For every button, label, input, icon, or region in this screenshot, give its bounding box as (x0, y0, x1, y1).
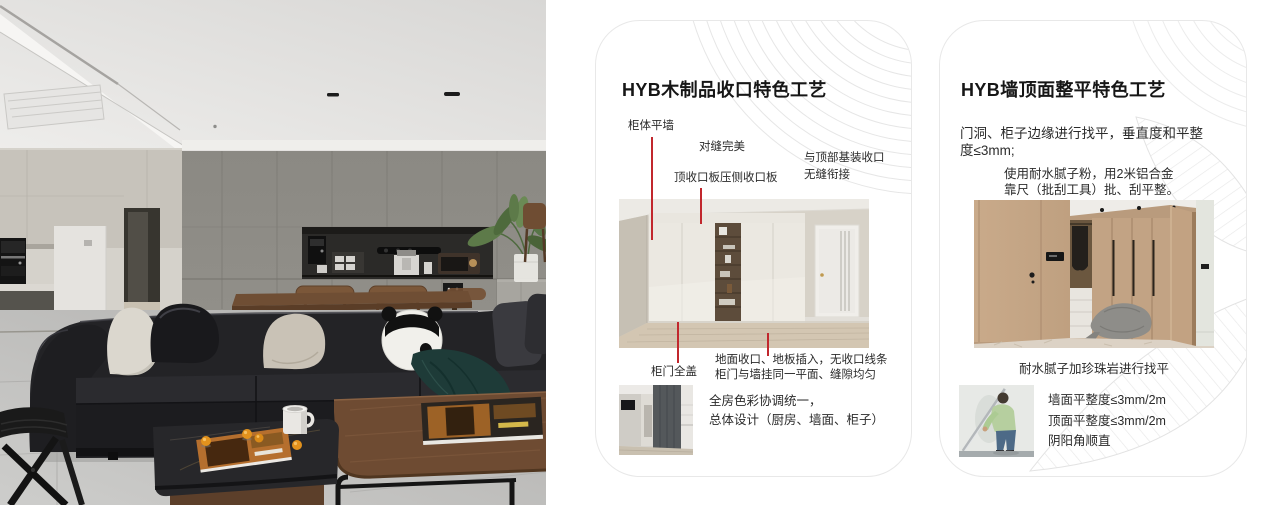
card2-title: HYB墙顶面整平特色工艺 (961, 76, 1166, 102)
living-room-photo (0, 0, 546, 505)
kitchen-area (0, 148, 182, 334)
callout-perfect-seam: 对缝完美 (699, 140, 745, 155)
spec-wall-flatness: 墙面平整度≤3mm/2m (1048, 390, 1166, 411)
card1-title: HYB木制品收口特色工艺 (622, 76, 827, 102)
wood-hallway-image (974, 200, 1214, 348)
gray-cabinet-wall (182, 140, 546, 310)
page: HYB木制品收口特色工艺 柜体平墙 对缝完美 顶收口板压侧收口板 与顶部基装收口… (0, 0, 1280, 505)
light-switch (84, 240, 92, 246)
callout-top-joint: 与顶部基装收口 无缝衔接 (804, 150, 885, 184)
recessed-light (444, 92, 460, 96)
callout-line-floor (767, 333, 769, 356)
spec-corners-straight: 阴阳角顺直 (1048, 431, 1166, 452)
leveling-paragraph-1: 门洞、柜子边缘进行找平，垂直度和平整 度≤3mm; (960, 125, 1203, 159)
card-wood-trim-craft: HYB木制品收口特色工艺 柜体平墙 对缝完美 顶收口板压侧收口板 与顶部基装收口… (595, 20, 912, 477)
black-leather-pillow (151, 304, 219, 363)
hallway-doorway (124, 208, 160, 314)
callout-line-cabinet-wall (651, 137, 653, 240)
callout-line-top-board (700, 188, 702, 224)
worker-thumbnail (959, 385, 1034, 457)
countertop (0, 284, 54, 291)
callout-cabinet-flush-wall: 柜体平墙 (628, 119, 674, 134)
color-unify-summary: 全房色彩协调统一， 总体设计（厨房、墙面、柜子） (709, 392, 884, 430)
flatness-specs: 墙面平整度≤3mm/2m 顶面平整度≤3mm/2m 阴阳角顺直 (1048, 390, 1166, 452)
leveling-paragraph-2: 使用耐水腻子粉，用2米铝合金 靠尺（批刮工具）批、刮平整。 (1004, 166, 1179, 198)
callout-full-cover-door: 柜门全盖 (651, 365, 697, 380)
wardrobe-render-image (619, 199, 869, 348)
leveling-caption: 耐水腻子加珍珠岩进行找平 (974, 358, 1214, 377)
coffee-niche (302, 227, 493, 279)
living-room-illustration (0, 0, 546, 505)
ceiling (0, 0, 546, 152)
callout-line-door (677, 322, 679, 363)
recessed-light (327, 93, 339, 97)
card-wall-leveling-craft: HYB墙顶面整平特色工艺 门洞、柜子边缘进行找平，垂直度和平整 度≤3mm; 使… (939, 20, 1247, 477)
spec-ceiling-flatness: 顶面平整度≤3mm/2m (1048, 411, 1166, 432)
callout-top-board: 顶收口板压侧收口板 (674, 171, 778, 186)
floor-trim-note: 地面收口、地板插入，无收口线条 柜门与墙挂同一平面、缝隙均匀 (715, 353, 888, 383)
interior-thumbnail (619, 385, 693, 455)
magazine (421, 397, 543, 445)
